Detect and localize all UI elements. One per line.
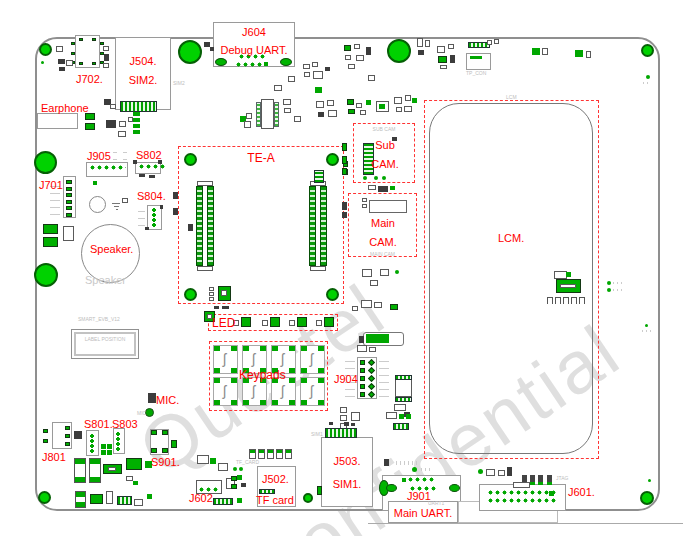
mounting-hole (184, 288, 197, 301)
smd-part (450, 55, 455, 63)
smd-part (316, 101, 324, 108)
label-j601: J601. (568, 486, 595, 498)
smd-part (425, 40, 430, 47)
smd-part (394, 404, 406, 411)
smd-part (63, 226, 74, 241)
smd-part (283, 99, 291, 105)
smd-part (246, 113, 252, 119)
smd-part (344, 45, 351, 51)
smd-part (244, 121, 251, 128)
smd-part (288, 76, 295, 82)
keypad-switch (213, 377, 238, 406)
smd-part (103, 46, 109, 51)
pad (92, 38, 96, 41)
label-earphone: Earphone (41, 102, 89, 114)
label-position-box (71, 329, 139, 359)
connector-notch (513, 482, 530, 488)
smd-part (404, 106, 412, 112)
test-point (395, 270, 399, 274)
pad (555, 297, 561, 304)
silk-mic: MIC (137, 410, 146, 416)
sim2-contact-row (120, 101, 157, 112)
smd-part (530, 475, 535, 485)
label-j602: J602 (189, 492, 213, 504)
mounting-hole (326, 288, 339, 301)
label-main-cam-1: Main (358, 217, 408, 229)
pin (360, 360, 365, 365)
pad (66, 213, 72, 217)
smd-part (327, 100, 334, 106)
smd-part (368, 75, 375, 81)
smd-part (342, 212, 347, 218)
smd-part (133, 118, 140, 122)
label-mic: MIC. (156, 394, 179, 406)
smd-part (340, 415, 347, 421)
label-sub-cam-1: Sub (360, 139, 410, 151)
smd-part (197, 455, 209, 464)
smd-part (347, 99, 354, 105)
pad (563, 297, 569, 304)
label-j702: J702. (76, 73, 103, 85)
smd-part (276, 449, 283, 459)
smd-part (532, 48, 540, 55)
smd-part (366, 100, 371, 105)
smd-part (303, 64, 310, 69)
silk-sim1: SIM1 (311, 431, 323, 437)
pin (360, 392, 365, 397)
label-s901: S901. (151, 456, 180, 468)
silk-marks (613, 289, 622, 291)
label-s804: S804. (137, 190, 166, 202)
smd-part (221, 290, 227, 296)
led (324, 317, 334, 327)
connector-bracket (310, 266, 326, 271)
figure-baseline (368, 523, 683, 524)
smd-part (328, 110, 337, 117)
smd-part (368, 185, 376, 190)
b2b-connector (207, 186, 214, 266)
ic-pins (395, 375, 412, 380)
led (241, 317, 251, 327)
fiducial-dot (646, 75, 650, 79)
smd-part (494, 39, 499, 44)
smd-part (487, 40, 492, 45)
connector-j503-sim1 (321, 437, 373, 507)
label-j904: J904 (334, 373, 358, 385)
ic-pins (395, 397, 412, 402)
smd-part (104, 54, 109, 61)
silk-marks (113, 148, 117, 160)
smd-part (390, 304, 398, 310)
smd-part (134, 499, 143, 506)
smd-part (118, 131, 126, 137)
smd-part (370, 280, 378, 286)
label-led: LED (212, 317, 235, 329)
smd-part (139, 174, 145, 177)
smd-part (586, 51, 591, 58)
smd-part (380, 269, 389, 276)
camera-connector (369, 200, 407, 213)
smd-part (133, 481, 138, 485)
silk-jtag: JTAG (556, 475, 568, 481)
smd-part (366, 47, 371, 55)
pin-row (90, 165, 126, 172)
smd-part (412, 98, 417, 103)
silk-marks (138, 208, 145, 226)
pad (65, 434, 70, 438)
smd-part (285, 449, 292, 459)
label-tf-card: TF card (256, 494, 294, 506)
pad (231, 484, 237, 489)
smd-part (147, 494, 152, 499)
smd-part (351, 412, 360, 421)
smd-part (438, 56, 447, 63)
smd-part (241, 483, 246, 487)
smd-part (393, 423, 409, 430)
smd-part (145, 227, 149, 230)
mounting-hole (387, 39, 411, 63)
pin-grid (488, 490, 558, 506)
smd-part (440, 65, 447, 69)
silk-main-cam: MAIN CAM (348, 251, 417, 257)
label-sub-cam-2: CAM. (360, 158, 410, 170)
silk-label-position: LABEL POSITION (71, 336, 139, 342)
silk-marks (643, 82, 651, 84)
sim1-contact-row (325, 428, 357, 438)
smd-part (340, 407, 347, 413)
smd-part (315, 87, 322, 93)
pad (43, 439, 48, 443)
pin-ladder (314, 170, 324, 183)
pad (571, 297, 577, 304)
pad (215, 58, 227, 66)
pad (547, 297, 553, 304)
smd-part (362, 269, 372, 277)
smd-part (360, 110, 366, 115)
smd-part (374, 302, 382, 308)
smd-part (258, 449, 265, 459)
fiducial-dot (648, 479, 651, 482)
smd-part (214, 306, 219, 309)
pad (280, 58, 292, 66)
smd-part (316, 320, 322, 326)
pad (162, 430, 168, 435)
pad (43, 224, 58, 234)
keypad-switch (300, 377, 325, 406)
smd-part (66, 60, 73, 66)
smd-part (361, 300, 372, 308)
pin (382, 176, 386, 180)
connector-bracket (197, 181, 213, 186)
smd-part (348, 109, 355, 114)
smd-part (209, 292, 214, 296)
smd-part (362, 198, 367, 202)
smd-part (249, 449, 256, 459)
label-j502: J502. (262, 473, 289, 485)
smd-part (507, 467, 512, 476)
pad (579, 297, 585, 304)
smd-part (173, 208, 178, 215)
smd-part (448, 44, 454, 49)
smd-part (117, 496, 132, 505)
smd-part (110, 104, 116, 109)
mic-part (148, 393, 156, 403)
smd-part (133, 130, 140, 134)
b2b-connector (309, 186, 316, 266)
smd-part (359, 336, 364, 343)
label-main-cam-2: CAM. (358, 236, 408, 248)
b2b-connector (320, 186, 327, 266)
smd-part (318, 112, 324, 117)
smd-part (356, 103, 362, 108)
smd-part (325, 67, 330, 71)
smd-part (566, 272, 571, 277)
smd-part (56, 46, 63, 52)
silk-speaker: Speaker (85, 274, 126, 286)
smd-part (218, 463, 228, 471)
smd-part (59, 67, 65, 71)
keypad-switch (300, 345, 325, 374)
label-te-a: TE-A (178, 152, 344, 164)
smd-part (498, 470, 505, 476)
smd-part (418, 50, 424, 55)
smd-part (133, 112, 140, 116)
smd-part (126, 458, 142, 470)
smd-part (237, 498, 242, 503)
smd-part (106, 120, 116, 128)
label-j801: J801 (42, 451, 66, 463)
smd-part (133, 124, 140, 128)
pin (360, 384, 365, 389)
label-speaker: Speaker. (90, 243, 133, 255)
label-j604: J604 (213, 26, 295, 38)
smd-part (101, 450, 106, 455)
mounting-hole (39, 43, 52, 56)
silk-marks (396, 461, 418, 465)
smd-part (470, 56, 482, 59)
test-point (89, 196, 106, 213)
pin (360, 376, 365, 381)
label-sim1: SIM1. (321, 478, 373, 490)
smd-part (222, 306, 229, 309)
smd-part (366, 334, 389, 343)
smd-part (356, 55, 364, 61)
smd-part (237, 475, 242, 480)
smd-part (417, 38, 423, 47)
smd-part (354, 44, 360, 49)
smd-part (342, 168, 347, 175)
pad (79, 62, 83, 65)
pin-col (152, 208, 157, 227)
pad (43, 429, 48, 433)
smd-part (406, 414, 411, 419)
smd-part (357, 345, 367, 352)
smd-part (89, 458, 101, 483)
smd-part (396, 107, 402, 112)
pin (360, 368, 365, 373)
smd-part (160, 205, 163, 209)
smd-part (304, 72, 310, 77)
pad (66, 193, 72, 197)
pad (66, 200, 72, 204)
led (270, 317, 280, 327)
pad (85, 123, 95, 130)
smd-part (312, 62, 318, 67)
fiducial-dot (41, 61, 44, 64)
pad (66, 187, 72, 191)
smd-part (209, 297, 214, 301)
pad (66, 206, 72, 210)
smd-part (437, 46, 445, 53)
smd-part (399, 414, 404, 419)
pad (449, 484, 460, 492)
label-s801: S801. (84, 418, 113, 430)
pad (71, 52, 75, 55)
smd-part (101, 444, 106, 449)
mounting-hole (38, 491, 51, 504)
ic-pins (256, 102, 261, 127)
pin-1-pad (549, 491, 554, 496)
pin-row (139, 164, 166, 171)
test-point (645, 324, 648, 327)
smd-part (390, 186, 395, 190)
smd-part (74, 458, 86, 483)
silk-uart1: UART1 (428, 500, 444, 506)
smd-part (369, 347, 376, 352)
smd-part (74, 431, 82, 439)
smd-part (345, 55, 351, 60)
pin (239, 467, 243, 471)
smd-part (342, 143, 347, 151)
smd-part (405, 95, 411, 101)
mic-pad (145, 408, 154, 417)
pad (171, 440, 177, 448)
pin-col (116, 432, 121, 451)
smd-part (58, 59, 65, 64)
smd-part (352, 306, 358, 311)
pad (66, 180, 72, 184)
silk-tf-card: TF_CARD (236, 459, 259, 465)
smd-part (107, 444, 112, 449)
pin-row (408, 477, 436, 483)
smd-part (542, 48, 548, 55)
smd-part (313, 71, 323, 79)
ic-body (395, 379, 412, 397)
label-j503: J503. (321, 455, 373, 467)
pin-row (236, 62, 264, 68)
pad (162, 448, 168, 453)
smd-part (90, 494, 103, 504)
smd-part (538, 475, 543, 485)
smd-part (149, 175, 155, 178)
gnd-symbol (116, 209, 118, 210)
label-j905: J905 (87, 150, 111, 162)
keypad-switch (213, 345, 238, 374)
label-sim2: SIM2. (115, 74, 171, 86)
smd-part (188, 224, 193, 231)
pad (43, 237, 58, 247)
smd-part (173, 192, 178, 199)
smd-part (378, 186, 388, 192)
silk-marks (379, 359, 389, 397)
silk-marks (123, 148, 127, 160)
label-debug-uart: Debug UART. (213, 44, 295, 56)
smd-part (362, 204, 367, 208)
silk-lcm: LCM (506, 94, 517, 100)
smd-part (351, 423, 355, 426)
label-s803: S803 (112, 418, 138, 430)
label-keypads: Keypads (239, 369, 286, 381)
smd-part (267, 449, 274, 459)
smd-part (384, 459, 389, 466)
smd-part (394, 97, 402, 104)
smd-part (386, 412, 397, 419)
smd-part (560, 284, 576, 288)
ic-pins (274, 102, 279, 127)
smd-part (210, 458, 216, 464)
pad (92, 62, 96, 65)
pin-1-pad (264, 62, 268, 66)
test-point (607, 281, 611, 285)
pad (65, 442, 70, 446)
smd-part (486, 469, 495, 476)
label-s802: S802 (136, 149, 162, 161)
gnd-symbol (112, 203, 120, 204)
pin-1-pad (402, 478, 406, 482)
smd-part (103, 63, 109, 68)
pad (100, 42, 104, 45)
silk-board-name: SMART_EVB_V12 (78, 316, 120, 322)
pad (231, 476, 237, 481)
mounting-hole (303, 493, 313, 503)
smd-part (213, 498, 233, 505)
silk-marks (421, 468, 433, 471)
earphone-jack (37, 113, 78, 129)
smd-part (547, 475, 552, 485)
test-point (412, 467, 417, 472)
smd-part (119, 121, 126, 127)
label-j504: J504. (115, 55, 171, 67)
label-lcm: LCM. (498, 232, 524, 244)
mounting-hole (640, 491, 654, 505)
pad (151, 448, 157, 453)
ic-body (261, 99, 274, 129)
smd-part (344, 422, 349, 426)
smd-part (106, 491, 113, 504)
smd-part (126, 476, 133, 481)
connector-bracket (197, 266, 213, 271)
gnd-symbol (114, 206, 119, 207)
pad (71, 42, 75, 45)
pcb-figure: Quectel Confidential J604 Debug UART. J7… (0, 0, 686, 536)
pin (363, 176, 367, 180)
pin (233, 467, 237, 471)
test-point (607, 288, 611, 292)
led (297, 317, 307, 327)
smd-part (209, 287, 214, 291)
smd-part (348, 64, 355, 69)
silk-marks (613, 282, 622, 284)
pin (374, 176, 378, 180)
pad (151, 430, 157, 435)
mounting-hole (34, 263, 58, 287)
mounting-hole (641, 44, 654, 57)
smd-part (329, 422, 333, 425)
smd-part (289, 320, 295, 326)
b2b-connector (196, 186, 203, 266)
pad (65, 426, 70, 430)
test-point (478, 469, 483, 474)
